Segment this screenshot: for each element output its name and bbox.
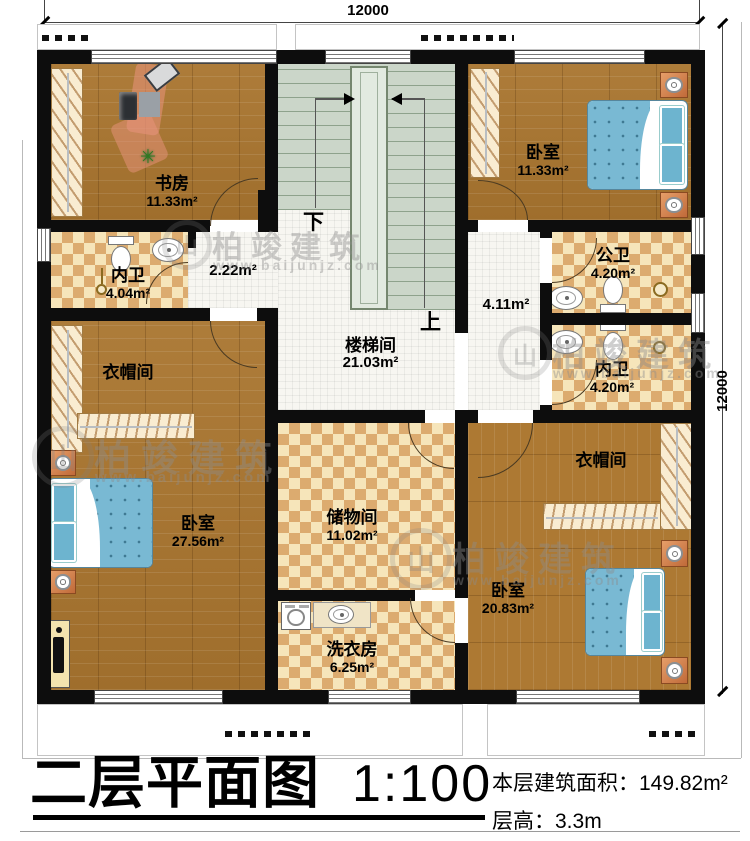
room-label-stairwell: 楼梯间 21.03m² (298, 336, 443, 371)
wall (455, 64, 468, 333)
watermark-url: www.baijunjz.com (95, 469, 272, 486)
wall (540, 232, 552, 238)
room-label-innerbath-left: 内卫 4.04m² (68, 266, 188, 301)
dimension-line-top (44, 22, 700, 23)
room-label-bedroom-topright: 卧室 11.33m² (473, 143, 613, 178)
window (91, 50, 277, 64)
watermark-logo-icon: 山 (162, 220, 212, 270)
window (325, 50, 411, 64)
wall (552, 313, 692, 325)
washing-machine (281, 602, 311, 630)
toilet (600, 304, 626, 313)
room-label-cloak-left: 衣帽间 (58, 363, 198, 382)
nightstand (660, 192, 688, 218)
nightstand (661, 657, 688, 684)
room-label-study: 书房 11.33m² (102, 174, 242, 209)
title-bottom-rule (20, 831, 740, 832)
floor-plan-canvas: 12000 12000 下 上 ✳ (0, 0, 750, 841)
window (691, 293, 705, 333)
wall (533, 410, 692, 423)
room-label-cloak-right: 衣帽间 (531, 451, 671, 470)
wardrobe-study (51, 68, 83, 217)
stair-direction-arrow (385, 93, 402, 105)
tv-cabinet (48, 620, 70, 688)
floor-hall-right (468, 232, 540, 410)
room-label-laundry: 洗衣房 6.25m² (282, 640, 422, 675)
room-label-publicbath: 公卫 4.20m² (553, 246, 673, 281)
floor-height-label: 层高： (492, 810, 555, 833)
towel-knob (653, 282, 668, 297)
eave-outline (487, 704, 705, 756)
nightstand (661, 540, 688, 567)
wall (278, 590, 415, 601)
nightstand (50, 570, 76, 594)
watermark-logo-icon: 山 (390, 528, 452, 590)
stair-walkline (315, 98, 316, 208)
wardrobe-cloak-right (660, 423, 692, 530)
dashed-marker (421, 35, 514, 41)
wall (257, 308, 278, 321)
stair-flight-left (278, 64, 350, 210)
title-underline (33, 815, 485, 820)
stair-walkline (315, 98, 347, 100)
wall (468, 220, 478, 232)
window (37, 228, 51, 262)
drawing-scale: 1:100 (352, 755, 492, 813)
stair-walkline (424, 98, 425, 308)
dashed-marker (42, 35, 88, 41)
window (514, 50, 645, 64)
eave-outline (37, 704, 463, 756)
computer-monitor (119, 92, 137, 120)
watermark-logo-icon: 山 (498, 326, 552, 380)
floor-plan-page: { "dimensions": { "top": "12000", "right… (0, 0, 750, 841)
paper-edge-left (22, 140, 23, 758)
wall (265, 321, 278, 690)
floor-area-value: 149.82m² (639, 772, 728, 795)
window (94, 690, 223, 704)
toilet (108, 236, 134, 245)
watermark-logo-icon: 山 (32, 426, 94, 488)
drawing-title: 二层平面图 (30, 753, 320, 813)
wall (51, 308, 210, 321)
window (328, 690, 411, 704)
rack-cloak-right (543, 503, 661, 530)
wall-outer-left (37, 50, 51, 704)
paper-edge-right (741, 22, 742, 758)
floor-height-value: 3.3m (555, 810, 602, 833)
floor-area-label: 本层建筑面积： (492, 772, 639, 795)
dashed-marker (649, 731, 695, 737)
watermark-url: www.baijunjz.com (553, 365, 722, 381)
stair-direction-arrow (344, 93, 361, 105)
wall (455, 410, 478, 423)
window (691, 217, 705, 255)
nightstand (660, 72, 688, 98)
watermark-url: www.baijunjz.com (213, 257, 382, 273)
room-label-hall-right: 4.11m² (446, 297, 566, 313)
wall (455, 643, 468, 690)
dimension-top-value: 12000 (338, 2, 398, 20)
plant: ✳ (140, 146, 156, 169)
keyboard (139, 92, 160, 117)
sink (328, 605, 354, 624)
wall (278, 410, 425, 423)
dimension-line-right (722, 24, 723, 694)
stair-up-label: 上 (420, 306, 441, 336)
room-label-bedroom-left: 卧室 27.56m² (128, 514, 268, 549)
wall (528, 220, 692, 232)
dashed-marker (225, 731, 315, 737)
floor-area-text: 本层建筑面积：149.82m² (492, 772, 728, 796)
watermark-url: www.baijunjz.com (453, 572, 622, 588)
window (516, 690, 640, 704)
